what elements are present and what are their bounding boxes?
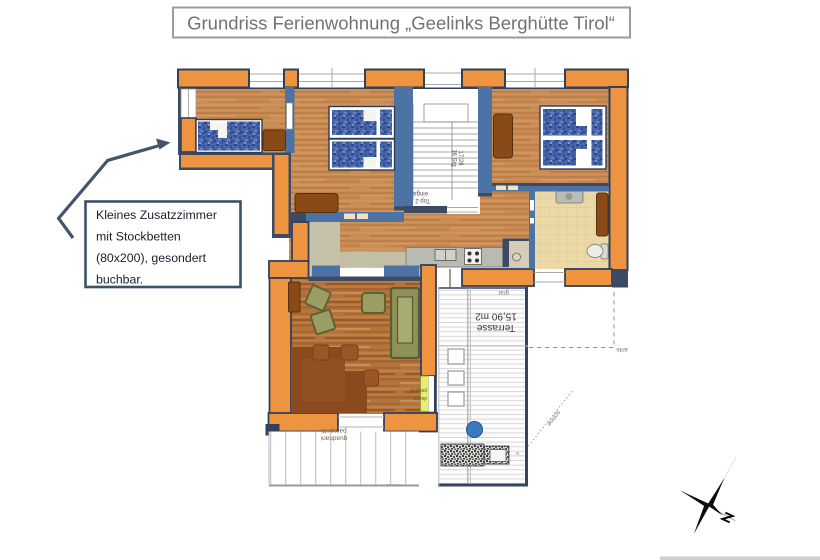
svg-text:sonne: sonne (545, 409, 562, 428)
svg-text:quadriani: quadriani (321, 435, 348, 442)
svg-text:decke: decke (413, 395, 427, 401)
svg-text:Terrasse: Terrasse (476, 322, 515, 333)
svg-text:parapetti: parapetti (321, 427, 346, 434)
svg-text:Top 2: Top 2 (415, 197, 430, 203)
svg-text:17/28: 17/28 (457, 150, 463, 166)
svg-text:ante: ante (616, 346, 628, 352)
svg-text:15,90 m2: 15,90 m2 (475, 311, 517, 322)
svg-text:veranda: veranda (385, 483, 402, 488)
svg-text:grar: grar (498, 289, 509, 295)
svg-text:buchbar.: buchbar. (96, 273, 143, 287)
svg-text:le: le (515, 451, 519, 456)
svg-text:16 Stg: 16 Stg (451, 149, 457, 166)
svg-text:Grundriss Ferienwohnung „Geeli: Grundriss Ferienwohnung „Geelinks Berghü… (187, 13, 615, 34)
svg-text:pergola: pergola (410, 387, 427, 393)
svg-text:mit Stockbetten: mit Stockbetten (96, 230, 181, 244)
svg-text:Kleines Zusatzzimmer: Kleines Zusatzzimmer (96, 208, 217, 222)
svg-text:(80x200), gesondert: (80x200), gesondert (96, 251, 207, 265)
